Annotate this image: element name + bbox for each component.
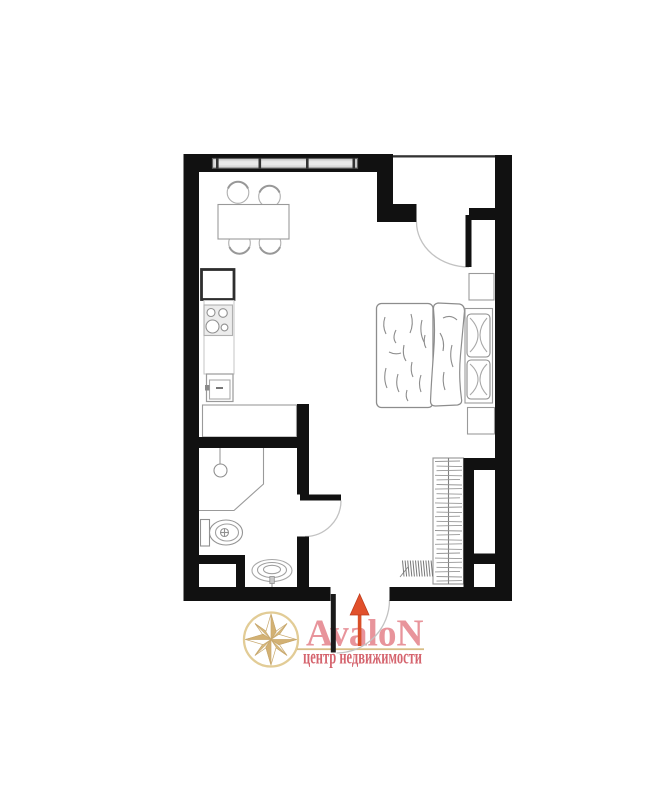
svg-text:центр недвижимости: центр недвижимости — [303, 647, 422, 669]
